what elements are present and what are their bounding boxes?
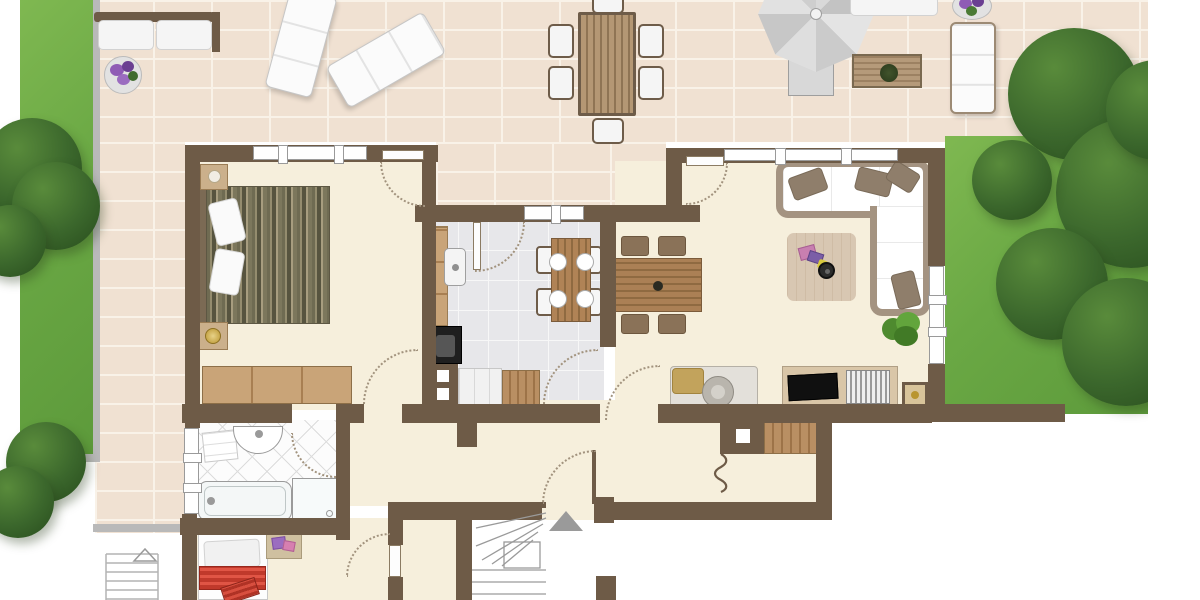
chimney-squiggle-icon bbox=[715, 454, 726, 492]
tree-right bbox=[972, 140, 1052, 220]
winder-stairs-icon bbox=[472, 513, 546, 594]
right-page-margin bbox=[1148, 0, 1200, 600]
exterior-stairs-arrow-icon bbox=[134, 549, 156, 561]
floor-plan-canvas bbox=[0, 0, 1200, 600]
